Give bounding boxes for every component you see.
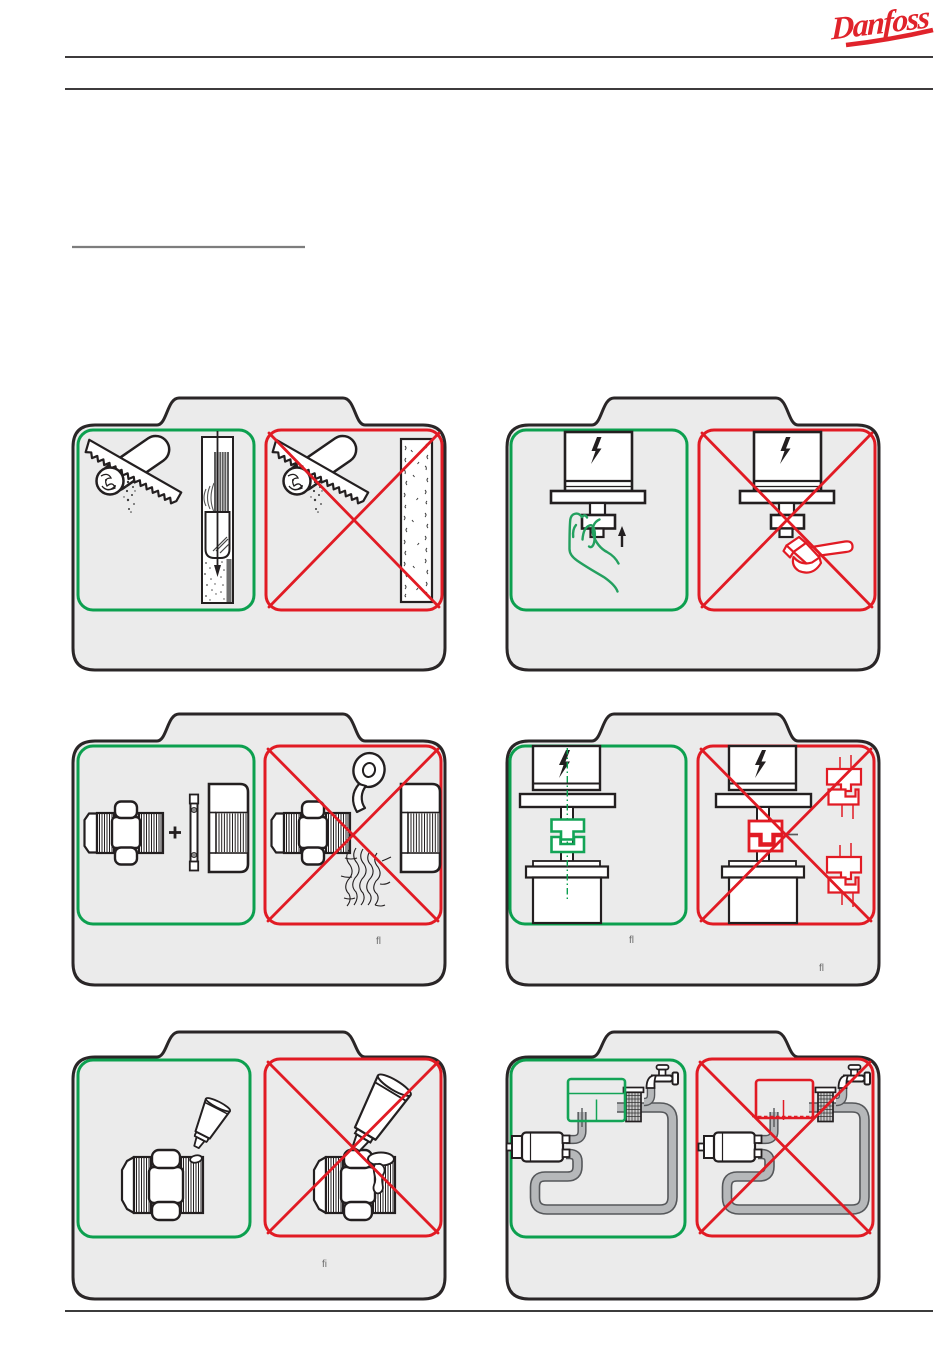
svg-text:fi: fi <box>322 1259 327 1270</box>
svg-text:fl: fl <box>376 936 381 947</box>
svg-text:fl: fl <box>819 963 824 974</box>
svg-text:fl: fl <box>629 935 634 946</box>
